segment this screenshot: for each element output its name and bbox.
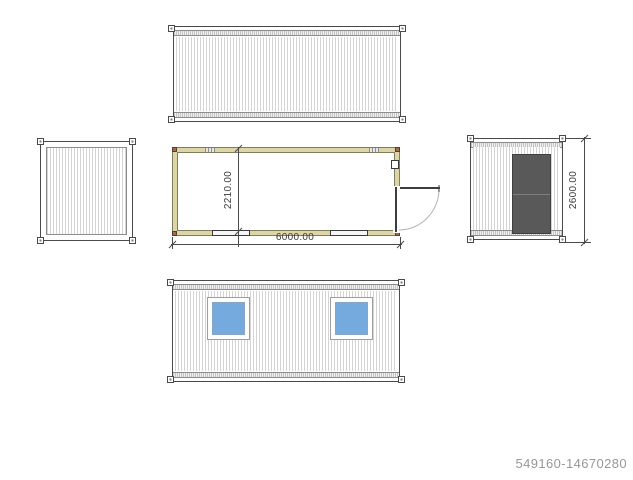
corner-fitting xyxy=(129,138,136,145)
dimension-label-length: 6000.00 xyxy=(253,233,337,243)
drawing-sheet: 2210.00 6000.00 2600.00 549160-14670280 xyxy=(0,0,633,480)
corner-fitting xyxy=(467,135,474,142)
corner-fitting xyxy=(167,376,174,383)
side-elevation-view xyxy=(172,280,400,382)
window xyxy=(330,297,373,340)
listing-id-watermark: 549160-14670280 xyxy=(470,456,627,471)
side-rail-bottom xyxy=(173,372,399,378)
corner-fitting xyxy=(399,116,406,123)
dimension-tick xyxy=(169,241,176,248)
door-swing-arc xyxy=(399,189,439,230)
end-elevation-blank-view xyxy=(40,141,133,241)
corner-fitting xyxy=(399,25,406,32)
wall-vent-symbol xyxy=(205,148,215,152)
wall-vent-symbol xyxy=(369,148,379,152)
plan-corner-post xyxy=(395,147,400,152)
corner-fitting xyxy=(168,25,175,32)
door-mid-rail xyxy=(513,194,550,195)
dimension-tick xyxy=(581,239,588,246)
corner-fitting xyxy=(37,237,44,244)
plan-door-frame-line xyxy=(395,187,397,232)
corner-fitting xyxy=(398,376,405,383)
corner-fitting xyxy=(559,135,566,142)
window xyxy=(207,297,250,340)
door xyxy=(512,154,551,234)
roof-corrugation xyxy=(176,37,398,111)
window-glass xyxy=(335,302,368,335)
corner-fitting xyxy=(129,237,136,244)
roof-plan-view xyxy=(173,26,401,122)
end-elevation-door-view xyxy=(470,138,563,240)
roof-rail-bottom xyxy=(174,112,400,118)
corner-fitting xyxy=(559,236,566,243)
dimension-label-height: 2600.00 xyxy=(569,148,579,232)
electrical-panel-symbol xyxy=(391,160,399,169)
end-corrugation xyxy=(46,147,127,235)
dimension-tick xyxy=(397,241,404,248)
floor-plan-interior xyxy=(177,152,395,231)
dimension-label-width: 2210.00 xyxy=(224,148,234,232)
corner-fitting xyxy=(467,236,474,243)
roof-rail-top xyxy=(174,30,400,36)
dimension-tick xyxy=(581,135,588,142)
corner-fitting xyxy=(168,116,175,123)
plan-corner-post xyxy=(172,147,177,152)
plan-corner-post xyxy=(172,231,177,236)
side-rail-top xyxy=(173,284,399,290)
corner-fitting xyxy=(398,279,405,286)
corner-fitting xyxy=(37,138,44,145)
window-glass xyxy=(212,302,245,335)
plan-door-leaf xyxy=(400,187,440,189)
floor-plan-view xyxy=(172,147,400,236)
corner-fitting xyxy=(167,279,174,286)
